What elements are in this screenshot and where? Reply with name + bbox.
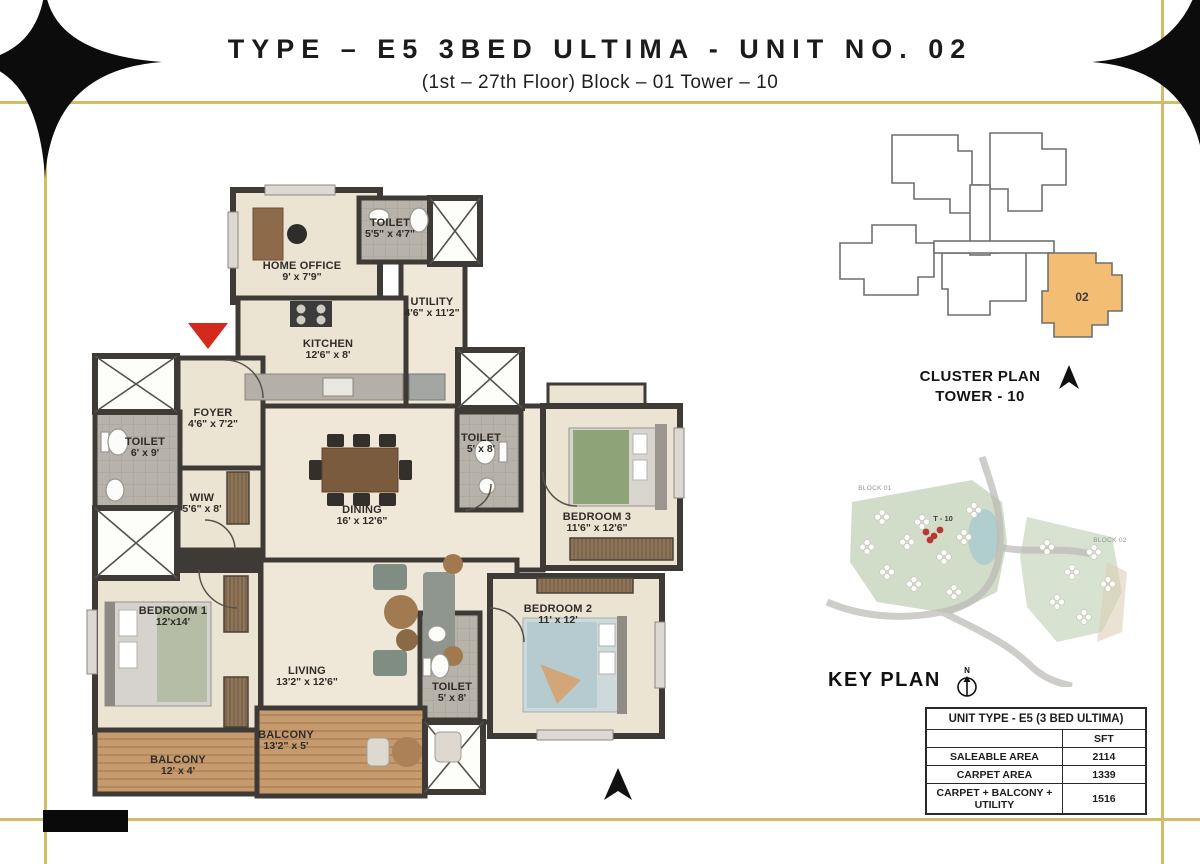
room-label-balcony1: BALCONY 12' x 4' xyxy=(150,754,206,778)
pouf xyxy=(443,554,463,574)
page-subtitle: (1st – 27th Floor) Block – 01 Tower – 10 xyxy=(0,72,1200,94)
utility-appliance xyxy=(409,374,445,400)
gold-border-left xyxy=(44,101,47,864)
page-title: TYPE – E5 3BED ULTIMA - UNIT NO. 02 xyxy=(0,34,1200,65)
bedroom3-wardrobe xyxy=(570,538,673,560)
table-title-row: UNIT TYPE - E5 (3 BED ULTIMA) xyxy=(926,708,1146,730)
gold-border-top xyxy=(0,101,1200,104)
key-plan-drawing: T - 10 BLOCK 01 BLOCK 02 xyxy=(822,442,1142,687)
table-row: CARPET AREA 1339 xyxy=(926,766,1146,784)
cluster-unit-number: 02 xyxy=(1075,290,1089,304)
table-title: UNIT TYPE - E5 (3 BED ULTIMA) xyxy=(926,708,1146,730)
keyplan-block1-label: BLOCK 01 xyxy=(858,485,892,492)
plan-north-arrow-icon xyxy=(604,768,632,800)
svg-text:N: N xyxy=(964,666,970,675)
key-plan-caption: KEY PLAN xyxy=(828,669,941,692)
key-plan-compass-icon: N xyxy=(952,664,982,702)
desk xyxy=(253,208,283,260)
stove xyxy=(290,301,332,327)
keyplan-tower-label: T - 10 xyxy=(933,514,953,523)
table-header-empty xyxy=(926,730,1062,748)
coffee-table xyxy=(384,595,418,629)
room-label-dining: DINING 16' x 12'6" xyxy=(337,504,388,528)
table-row: CARPET + BALCONY + UTILITY 1516 xyxy=(926,784,1146,815)
table-row: SALEABLE AREA 2114 xyxy=(926,748,1146,766)
bedroom1-wardrobe-b xyxy=(224,677,248,727)
room-label-wiw: WIW 5'6" x 8' xyxy=(182,492,221,516)
entrance-arrow-icon xyxy=(188,323,228,349)
room-label-home-office: HOME OFFICE 9' x 7'9" xyxy=(263,260,342,284)
bedroom1-wardrobe-a xyxy=(224,576,248,632)
bedroom2-furniture xyxy=(523,616,627,714)
table-header-sft: SFT xyxy=(1062,730,1146,748)
armchair xyxy=(373,564,407,590)
room-label-bedroom2: BEDROOM 2 11' x 12' xyxy=(524,603,592,627)
cluster-units xyxy=(840,133,1066,315)
room-label-balcony2: BALCONY 13'2" x 5' xyxy=(258,729,314,753)
kitchen-sink xyxy=(323,378,353,396)
office-chair xyxy=(287,224,307,244)
cluster-north-arrow-icon xyxy=(1056,362,1082,392)
gold-border-bottom xyxy=(0,818,1200,821)
room-label-toilet-top: TOILET 5'5" x 4'7" xyxy=(365,217,415,241)
table-header-row: SFT xyxy=(926,730,1146,748)
bedroom3-furniture xyxy=(569,424,667,510)
room-label-toilet-bottom: TOILET 5' x 8' xyxy=(432,681,472,705)
sparkle-star-top-left-icon xyxy=(0,0,170,190)
room-label-kitchen: KITCHEN 12'6" x 8' xyxy=(303,338,353,362)
room-label-utility: UTILITY 4'6" x 11'2" xyxy=(404,296,459,320)
balcony-table xyxy=(392,737,422,767)
black-bar-decoration xyxy=(43,810,128,832)
room-label-toilet-left: TOILET 6' x 9' xyxy=(125,436,165,460)
room-label-toilet-mid: TOILET 5' x 8' xyxy=(461,432,501,456)
floorplan: HOME OFFICE 9' x 7'9" TOILET 5'5" x 4'7"… xyxy=(85,172,695,812)
bedroom2-wardrobe xyxy=(537,578,633,593)
armchair xyxy=(373,650,407,676)
area-table: UNIT TYPE - E5 (3 BED ULTIMA) SFT SALEAB… xyxy=(925,707,1147,815)
cluster-plan-drawing: 02 xyxy=(830,125,1135,365)
floorplan-drawing xyxy=(85,172,695,812)
room-label-bedroom1: BEDROOM 1 12'x14' xyxy=(139,605,207,629)
room-label-living: LIVING 13'2" x 12'6" xyxy=(276,665,338,689)
wiw-wardrobe xyxy=(227,472,249,524)
dining-table xyxy=(322,448,398,492)
room-label-foyer: FOYER 4'6" x 7'2" xyxy=(188,407,238,431)
keyplan-block2-label: BLOCK 02 xyxy=(1093,537,1127,544)
brochure-page: TYPE – E5 3BED ULTIMA - UNIT NO. 02 (1st… xyxy=(0,0,1200,864)
room-label-bedroom3: BEDROOM 3 11'6" x 12'6" xyxy=(563,511,631,535)
